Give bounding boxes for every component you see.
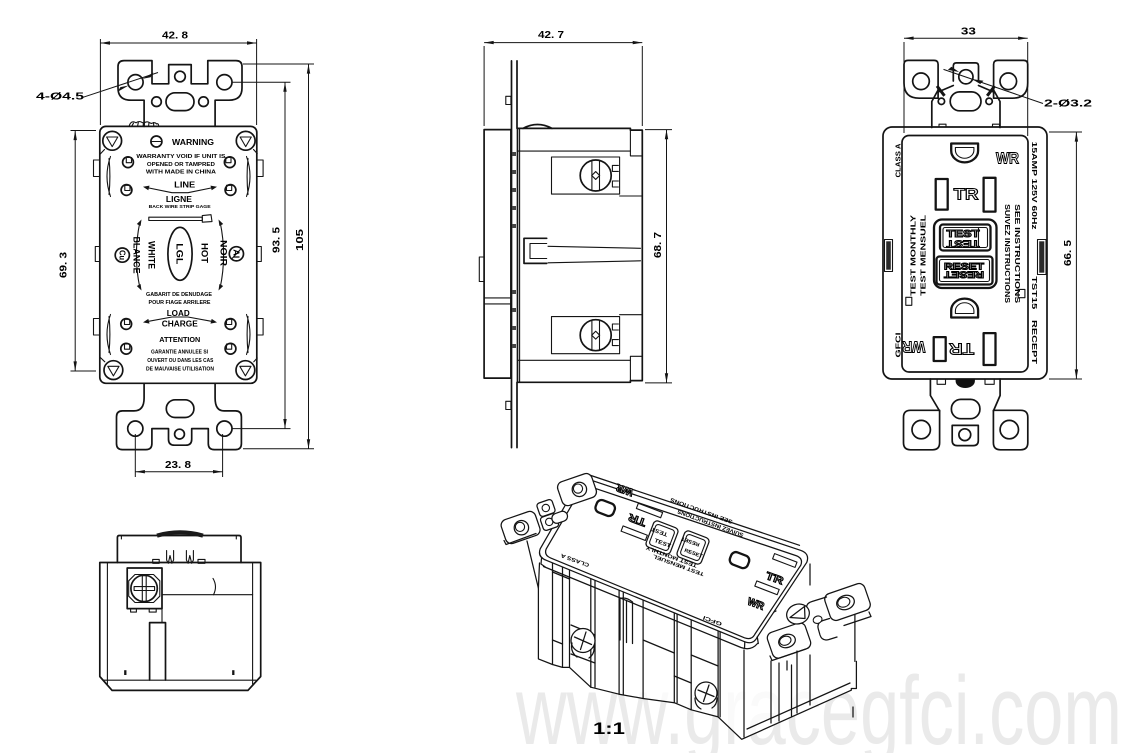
- svg-text:CHARGE: CHARGE: [162, 319, 198, 329]
- svg-text:TEST MENSUEL: TEST MENSUEL: [921, 215, 928, 296]
- svg-text:LOAD: LOAD: [167, 308, 190, 318]
- svg-text:GFCI: GFCI: [894, 333, 903, 358]
- svg-text:2-Ø3.2: 2-Ø3.2: [1044, 98, 1092, 110]
- svg-text:42. 7: 42. 7: [538, 29, 564, 41]
- svg-text:15AMP 125V 60Hz: 15AMP 125V 60Hz: [1030, 142, 1039, 230]
- svg-text:OPENED OR TAMPRED: OPENED OR TAMPRED: [147, 162, 215, 168]
- svg-text:RESET: RESET: [944, 269, 984, 280]
- svg-text:WHITE: WHITE: [147, 241, 157, 269]
- svg-text:105: 105: [294, 229, 306, 251]
- svg-text:GARANTIE ANNULEE SI: GARANTIE ANNULEE SI: [151, 349, 208, 355]
- svg-text:TR: TR: [949, 340, 974, 357]
- svg-text:ATTENTION: ATTENTION: [159, 335, 200, 344]
- svg-text:WITH MADE IN CHINA: WITH MADE IN CHINA: [146, 169, 216, 175]
- svg-text:TEST: TEST: [947, 237, 980, 248]
- svg-text:SEE INSTRUCTIONS: SEE INSTRUCTIONS: [1013, 204, 1020, 304]
- svg-text:LINE: LINE: [174, 179, 195, 189]
- svg-text:BACK WIRE STRIP GAGE: BACK WIRE STRIP GAGE: [149, 204, 212, 210]
- svg-text:93. 5: 93. 5: [271, 227, 283, 253]
- svg-text:WARNING: WARNING: [172, 138, 214, 147]
- svg-text:WR: WR: [902, 338, 925, 355]
- svg-text:23. 8: 23. 8: [165, 459, 191, 471]
- svg-text:NOIR: NOIR: [219, 240, 229, 267]
- svg-text:LIGNE: LIGNE: [166, 194, 192, 204]
- svg-text:4-Ø4.5: 4-Ø4.5: [36, 91, 84, 103]
- svg-text:CLASS A: CLASS A: [894, 143, 903, 178]
- svg-text:TR: TR: [954, 187, 979, 204]
- svg-text:TEST MONTHLY: TEST MONTHLY: [911, 214, 918, 296]
- svg-text:Cu: Cu: [118, 250, 127, 260]
- svg-text:RECEPT: RECEPT: [1030, 320, 1039, 365]
- svg-text:42. 8: 42. 8: [162, 30, 188, 42]
- svg-text:WARRANTY VOID IF UNIT IS: WARRANTY VOID IF UNIT IS: [136, 154, 225, 160]
- svg-text:SUIVEZ INSTRUCTIONS: SUIVEZ INSTRUCTIONS: [1003, 204, 1010, 304]
- svg-text:BLANCE: BLANCE: [131, 237, 141, 274]
- svg-text:66. 5: 66. 5: [1062, 240, 1074, 266]
- svg-text:HOT: HOT: [200, 243, 210, 264]
- svg-text:OUVERT OU DANS LES CAS: OUVERT OU DANS LES CAS: [147, 358, 213, 364]
- svg-text:GABARIT DE DENUDAGE: GABARIT DE DENUDAGE: [146, 292, 212, 298]
- svg-text:DE MAUVAISE UTILISATION: DE MAUVAISE UTILISATION: [146, 366, 214, 372]
- svg-text:POUR FIAGE ARRILERE: POUR FIAGE ARRILERE: [149, 300, 211, 306]
- svg-text:69. 3: 69. 3: [58, 252, 70, 278]
- svg-text:Al: Al: [232, 249, 241, 258]
- svg-text:1:1: 1:1: [593, 720, 625, 738]
- svg-text:TST15: TST15: [1030, 276, 1039, 310]
- svg-text:68. 7: 68. 7: [652, 232, 664, 258]
- svg-text:WR: WR: [996, 151, 1019, 168]
- svg-text:33: 33: [961, 25, 976, 37]
- svg-text:LGL: LGL: [174, 243, 185, 264]
